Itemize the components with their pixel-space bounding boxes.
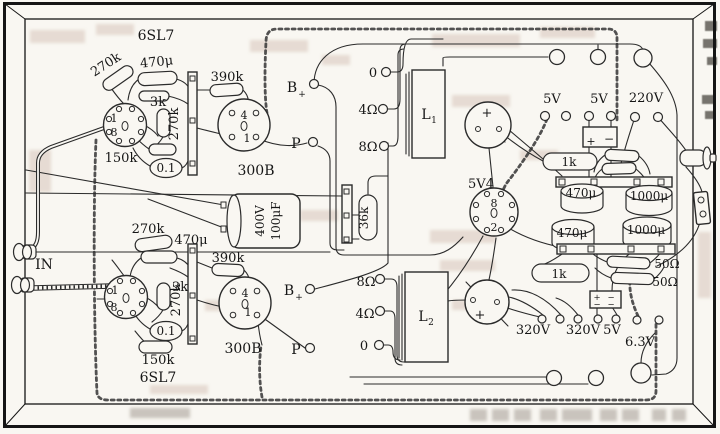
- label-270k-vert-top: 270k: [167, 108, 182, 141]
- terminal-tap8-bottom: [376, 275, 385, 284]
- label-l1: L: [421, 107, 430, 123]
- hole-bottom-3: [631, 363, 651, 383]
- label-bplus-sub-bottom: +: [295, 293, 303, 303]
- terminal-320v-1: [538, 315, 546, 323]
- label-tap0-top: 0: [369, 66, 377, 81]
- scanned-wiring-diagram: 6SL7 270k 470μ 3k 270k 150k 0.1 390k 1 8…: [0, 0, 720, 434]
- terminal-bplus-top: [310, 80, 319, 89]
- label-pin4-300b-bottom: 4: [242, 287, 249, 300]
- label-blk2-m3: −: [607, 300, 614, 310]
- label-cap-400v: 400V: [253, 205, 267, 237]
- label-470u-psu-top: 470μ: [566, 186, 597, 200]
- terminal-plate-bottom: [306, 344, 315, 353]
- terminal-63v-1: [633, 316, 641, 324]
- label-blk1-plus: +: [586, 135, 595, 148]
- label-5v-a: 5V: [543, 92, 561, 107]
- label-1000u-psu-bottom: 1000μ: [627, 223, 666, 237]
- resistor-150k-top: [149, 144, 176, 155]
- label-1k-bottom: 1k: [552, 267, 568, 281]
- label-pin8-5v4: 8: [491, 197, 498, 210]
- terminal-63v-2: [655, 316, 663, 324]
- label-270k-vert-bottom: 270k: [169, 284, 184, 317]
- small-resistor-a: [605, 149, 640, 162]
- terminal-5v-b2: [607, 112, 616, 121]
- label-tap0-bottom: 0: [360, 339, 368, 354]
- terminal-tap4-top: [379, 105, 388, 114]
- terminal-5v-a2: [562, 112, 571, 121]
- label-pin8-6sl7-top: 8: [111, 126, 118, 139]
- label-150k-top: 150k: [105, 151, 138, 166]
- label-tap4-top: 4Ω: [358, 103, 377, 118]
- label-tube-5v4: 5V4: [468, 177, 494, 192]
- cap-470u-top: [138, 71, 178, 86]
- label-l1-sub: 1: [431, 116, 437, 126]
- label-input: IN: [35, 257, 53, 273]
- label-270k-bottom: 270k: [132, 222, 165, 237]
- label-5v-b: 5V: [590, 92, 608, 107]
- label-pin8-6sl7-bottom: 8: [111, 301, 118, 314]
- tube-socket-6sl7-top: [104, 104, 147, 147]
- label-01-bottom: 0.1: [156, 324, 175, 338]
- label-plate-bottom: P: [291, 342, 300, 358]
- terminal-tap0-bottom: [375, 341, 384, 350]
- hole-top-3: [634, 49, 652, 67]
- label-bplus-bottom: B: [284, 283, 294, 299]
- input-jack-top: [14, 244, 37, 261]
- label-150k-bottom: 150k: [142, 353, 175, 368]
- label-pin4-300b-top: 4: [241, 109, 248, 122]
- label-tap8-bottom: 8Ω: [356, 275, 375, 290]
- label-tube-6sl7-bottom: 6SL7: [140, 370, 177, 386]
- terminal-tap4-bottom: [376, 307, 385, 316]
- resistor-50ohm-b: [611, 272, 654, 284]
- label-bplus-top: B: [287, 80, 297, 96]
- terminal-bplus-bottom: [306, 285, 315, 294]
- label-can2-plus: +: [475, 308, 486, 323]
- terminal-strip-right: [693, 191, 710, 224]
- label-bplus-sub-top: +: [298, 90, 306, 100]
- hole-top-1: [550, 50, 565, 65]
- terminal-5v-c2: [612, 315, 620, 323]
- label-50ohm-b: 50Ω: [652, 275, 677, 289]
- terminal-tap8-top: [380, 142, 389, 151]
- label-l2-sub: 2: [428, 318, 434, 328]
- label-pin1-300b-top: 1: [244, 132, 251, 145]
- resistor-150k-bottom: [139, 341, 172, 353]
- terminal-tap0-top: [382, 68, 391, 77]
- label-can1-plus: +: [482, 106, 493, 121]
- label-320v-a: 320V: [516, 323, 551, 338]
- label-tube-300b-bottom: 300B: [224, 341, 261, 357]
- label-l2: L: [418, 309, 427, 325]
- cap-470u-bottom: [141, 251, 177, 263]
- label-3k-top: 3k: [150, 95, 166, 110]
- label-pin1-6sl7-bottom: 1: [112, 284, 119, 297]
- label-01-top: 0.1: [156, 161, 175, 175]
- label-220v: 220V: [629, 91, 664, 106]
- label-390k-top: 390k: [211, 70, 244, 85]
- hole-top-2: [591, 50, 606, 65]
- label-tube-6sl7-top: 6SL7: [138, 28, 175, 44]
- label-pin2-5v4: 2: [491, 221, 498, 234]
- label-tube-300b-top: 300B: [237, 163, 274, 179]
- label-470u-psu-bottom: 470μ: [557, 226, 588, 240]
- terminal-strip-psu-bottom: [557, 244, 675, 254]
- label-blk2-m2: −: [593, 300, 600, 310]
- label-470u-bottom: 470μ: [174, 233, 207, 248]
- label-390k-bottom: 390k: [212, 251, 245, 266]
- input-jack-bottom: [12, 277, 35, 294]
- terminal-220v-1: [631, 113, 640, 122]
- label-320v-b: 320V: [566, 323, 601, 338]
- hole-bottom-2: [589, 371, 604, 386]
- label-63v: 6.3V: [625, 335, 656, 350]
- resistor-50ohm-a: [607, 256, 651, 269]
- tube-socket-300b-bottom: [219, 277, 271, 329]
- label-pin1-300b-bottom: 1: [245, 306, 252, 319]
- terminal-320v-2: [556, 315, 564, 323]
- terminal-5v-a1: [541, 112, 550, 121]
- label-blk1-minus: −: [604, 132, 614, 146]
- terminal-220v-2: [654, 113, 663, 122]
- label-1k-top: 1k: [562, 155, 578, 169]
- can-capacitor-bottom: [465, 280, 509, 324]
- terminal-320v-3: [574, 315, 582, 323]
- label-36k: 36k: [357, 206, 371, 229]
- terminal-5v-c1: [594, 315, 602, 323]
- label-tap8-top: 8Ω: [358, 140, 377, 155]
- terminal-plate-top: [309, 138, 318, 147]
- label-50ohm-a: 50Ω: [654, 257, 679, 271]
- terminal-5v-b1: [585, 112, 594, 121]
- small-resistor-b: [602, 162, 636, 174]
- label-tap4-bottom: 4Ω: [355, 307, 374, 322]
- label-cap-100uf: 100μF: [269, 201, 283, 240]
- label-1000u-psu-top: 1000μ: [630, 189, 669, 203]
- label-plate-top: P: [291, 136, 300, 152]
- schematic-canvas: 6SL7 270k 470μ 3k 270k 150k 0.1 390k 1 8…: [0, 0, 720, 434]
- label-5v-c: 5V: [603, 323, 621, 338]
- label-pin1-6sl7-top: 1: [111, 112, 118, 125]
- hole-bottom-1: [547, 371, 562, 386]
